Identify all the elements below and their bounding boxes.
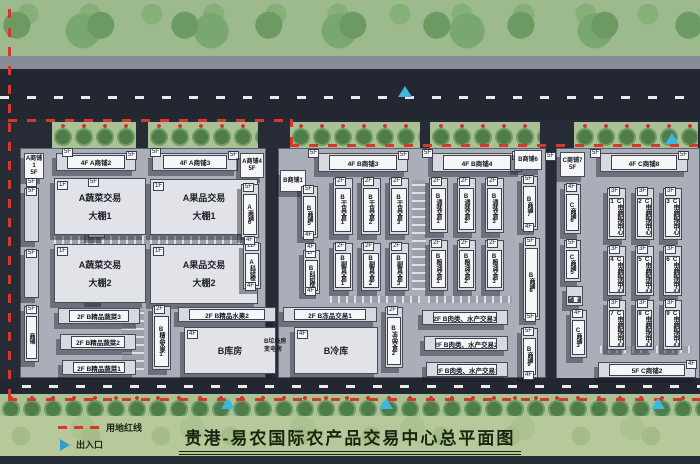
- floor-chip: 4F: [305, 287, 316, 296]
- building-label: A商铺15F: [25, 154, 43, 178]
- building: 3FC电商配送中心4: [607, 246, 626, 296]
- building-label: 商铺: [26, 316, 37, 359]
- floor-chip: 3F: [637, 245, 648, 254]
- building: 1FB科研楼4F: [303, 250, 320, 294]
- floor-chip: 2F: [459, 239, 470, 248]
- floor-chip: 5F: [398, 151, 409, 160]
- floor-chip: 2F: [387, 306, 398, 315]
- building: 2FB粮油交易1: [429, 240, 448, 291]
- building-label: B调味交易3: [487, 188, 502, 230]
- building: 2FB冻品交易2: [385, 307, 403, 368]
- floor-chip: 5F: [678, 151, 689, 160]
- building-label: 2F B冻品交易1: [294, 309, 366, 320]
- building-label: A商铺6: [243, 194, 257, 235]
- building: C商铺75F: [560, 152, 585, 177]
- building-label: B冻品交易2: [387, 317, 401, 365]
- building-label: B粮油交易3: [487, 250, 502, 288]
- building: 5F: [24, 250, 39, 298]
- building: 2FB干货交易3: [389, 178, 409, 235]
- building: 2FB粮油交易3: [485, 240, 504, 291]
- floor-chip: 5F: [26, 187, 37, 196]
- building-label: C电商配送中心8: [637, 310, 652, 347]
- building: C商铺4: [566, 286, 583, 306]
- building: 4FB库房: [184, 327, 276, 374]
- building-label: 4F C商铺8: [611, 155, 677, 170]
- building: 2FB副食交易3: [389, 243, 409, 291]
- building-label: 2F B肉类、水产交易2: [435, 338, 497, 349]
- building-label: B商铺9: [523, 338, 536, 375]
- entrance-marker: [665, 133, 679, 144]
- building: 3FC电商配送中心6: [663, 246, 682, 296]
- building: 2F B冻品交易1: [283, 307, 377, 322]
- building-label: 5F C商铺2: [609, 364, 685, 376]
- floor-chip: 4F: [572, 309, 583, 318]
- building: 2F B精品水果2: [178, 307, 276, 322]
- entrance-marker: [221, 398, 235, 409]
- floor-chip: 4F: [523, 371, 534, 380]
- floor-chip: 5F: [26, 305, 37, 314]
- building: 2FB调味交易3: [485, 178, 504, 233]
- floor-chip: 5F: [228, 151, 239, 160]
- floor-chip: 5F: [566, 239, 577, 248]
- bottom-road-lane-marking: [22, 385, 700, 388]
- floor-chip: 5F: [243, 183, 254, 192]
- building: 2F B精品蔬菜3: [58, 308, 140, 324]
- floor-chip: 5F: [523, 175, 534, 184]
- building-label: 2F B肉类、水产交易3: [433, 312, 497, 323]
- building-label: C商铺3: [572, 320, 585, 355]
- building-label: 4F B商铺3: [329, 155, 397, 170]
- building: 2FB精品水果1: [152, 306, 171, 370]
- building: 3FC电商配送中心5: [635, 246, 654, 296]
- parking-row: [54, 236, 258, 244]
- floor-chip: 1F: [57, 247, 68, 256]
- floor-chip: 1F: [153, 247, 164, 256]
- building-label: B干货交易2: [363, 188, 379, 232]
- building: 2FB干货交易1: [333, 178, 353, 235]
- floor-chip: 3F: [665, 299, 676, 308]
- building-label: B副食交易2: [363, 253, 379, 288]
- building: 3FC电商配送中心8: [635, 300, 654, 350]
- building-label: C电商配送中心7: [609, 310, 624, 347]
- floor-chip: 5F: [525, 313, 536, 322]
- floor-chip: 2F: [431, 177, 442, 186]
- building: 5FB商铺74F: [521, 176, 538, 230]
- top-road: [0, 69, 700, 119]
- building: 4F C商铺85F: [600, 153, 688, 172]
- floor-chip: 2F: [459, 177, 470, 186]
- building: 4FC商铺3: [570, 310, 587, 358]
- building: 4F B商铺45F: [432, 153, 522, 172]
- building: 2FB调味交易1: [429, 178, 448, 233]
- building: 3FC电商配送中心2: [635, 188, 654, 240]
- floor-chip: 2F: [487, 239, 498, 248]
- building: A商铺45F: [240, 153, 264, 178]
- floor-chip: 5F: [62, 148, 73, 157]
- building: 5F C商铺24F: [598, 362, 696, 378]
- building: 2FB副食交易1: [333, 243, 353, 291]
- building-label: B副食交易3: [391, 253, 407, 288]
- floor-chip: 4F: [566, 183, 577, 192]
- building: 4F A商铺35F: [152, 153, 238, 171]
- building: 2F B肉类、水产交易2: [424, 336, 508, 351]
- building-label: C电商配送中心5: [637, 256, 652, 293]
- floor-chip: 2F: [487, 177, 498, 186]
- building: 2FB调味交易2: [457, 178, 476, 233]
- floor-chip: 5F: [26, 178, 37, 187]
- parking-row: [428, 296, 512, 303]
- floor-chip: 4F: [244, 236, 255, 245]
- floor-chip: 3F: [637, 299, 648, 308]
- building-label: B调味交易1: [431, 188, 446, 230]
- building: 11FA科研楼4F: [243, 243, 261, 289]
- building-label: B调味交易2: [459, 188, 474, 230]
- parking-row: [330, 296, 420, 303]
- building-label: 2F B精品蔬菜3: [69, 310, 129, 322]
- building: 5FC商铺5: [564, 240, 581, 282]
- building: 5FA商铺6: [241, 184, 259, 238]
- building-label: 2F B精品水果2: [189, 309, 265, 320]
- floor-chip: 2F: [335, 242, 346, 251]
- building: 5F: [24, 188, 39, 242]
- building: 2FB副食交易2: [361, 243, 381, 291]
- floor-chip: 5F: [26, 249, 37, 258]
- building-label: 2F B精品蔬菜2: [71, 336, 125, 348]
- plan-title: 贵港-易农国际农产品交易中心总平面图: [0, 424, 700, 449]
- boundary-line-bottom: [8, 398, 700, 401]
- building-label: B商铺5: [303, 196, 316, 235]
- top-sidewalk: [0, 56, 700, 69]
- building-label: C商铺5: [566, 250, 579, 279]
- floor-chip: 2F: [363, 242, 374, 251]
- building: 2F B肉类、水产交易3: [422, 310, 508, 325]
- building: 5FB商铺85F: [523, 238, 540, 320]
- building-label: B库房: [185, 328, 275, 373]
- boundary-line-top-right: [290, 144, 700, 147]
- building-label: B精品水果1: [154, 316, 169, 367]
- building-label: B粮油交易1: [431, 250, 446, 288]
- building-label: C电商配送中心6: [665, 256, 680, 293]
- building: 4FC商铺6: [564, 184, 581, 234]
- parking-row: [412, 180, 426, 290]
- floor-chip: 3F: [609, 299, 620, 308]
- hedge-row: [148, 122, 258, 148]
- floor-chip: 2F: [154, 305, 165, 314]
- floor-chip: 2F: [431, 239, 442, 248]
- building-label: 2F B精品蔬菜1: [73, 362, 125, 373]
- building-label: B干货交易3: [391, 188, 407, 232]
- building: 2F B精品蔬菜1: [62, 360, 136, 375]
- building: 5F商铺: [24, 306, 39, 362]
- building-label: 4F A商铺2: [67, 155, 125, 169]
- building-label: B干货交易1: [335, 188, 351, 232]
- building-label: C商铺4: [568, 296, 581, 303]
- floor-chip: 3F: [665, 187, 676, 196]
- building-label: A蔬菜交易 大棚1: [55, 179, 145, 234]
- floor-chip: 2F: [391, 177, 402, 186]
- boundary-line-step: [290, 119, 293, 146]
- building-label: B商铺6: [515, 151, 541, 169]
- floor-chip: 3F: [665, 245, 676, 254]
- top-green-belt: [0, 0, 700, 56]
- building: 2F B精品蔬菜2: [60, 334, 136, 350]
- building-label: B商铺7: [523, 186, 536, 227]
- building: 4F B商铺35F: [318, 153, 408, 172]
- floor-chip: 3F: [609, 245, 620, 254]
- floor-chip: 4F: [305, 243, 316, 252]
- building-label: C电商配送中心2: [637, 198, 652, 237]
- building-label: A果品交易 大棚2: [151, 245, 257, 303]
- floor-chip: 2F: [335, 177, 346, 186]
- entrance-marker: [398, 86, 412, 97]
- floor-text: 5F: [569, 165, 576, 172]
- entrance-marker: [651, 398, 665, 409]
- floor-chip: 4F: [686, 360, 697, 369]
- floor-chip: 5F: [523, 327, 534, 336]
- floor-chip: 5F: [590, 149, 601, 158]
- floor-chip: 1F: [57, 181, 68, 190]
- floor-chip: 5F: [525, 237, 536, 246]
- building-label: B商铺8: [525, 248, 538, 317]
- hedge-row: [52, 122, 136, 148]
- site-plan: 用地红线 出入口 贵港-易农国际农产品交易中心总平面图 A商铺15F4F A商铺…: [0, 0, 700, 464]
- building: B商铺6: [514, 150, 542, 170]
- building: 3FC电商配送中心9: [663, 300, 682, 350]
- floor-chip: 3F: [609, 187, 620, 196]
- boundary-line-top-left: [8, 119, 292, 122]
- building-label: B粮油交易2: [459, 250, 474, 288]
- floor-chip: 5F: [422, 149, 433, 158]
- building: 4FB冷库: [294, 327, 378, 374]
- building: 1FA蔬菜交易 大棚1: [54, 178, 146, 235]
- building-label: 4F A商铺3: [163, 155, 227, 169]
- top-road-lane-marking: [0, 96, 700, 99]
- floor-text: 5F: [248, 166, 255, 173]
- building: 2FB粮油交易2: [457, 240, 476, 291]
- entrance-marker: [379, 398, 393, 409]
- boundary-line-left: [8, 0, 11, 398]
- building: 2FB干货交易2: [361, 178, 381, 235]
- floor-text: 5F: [30, 170, 37, 177]
- building-label: C商铺75F: [561, 153, 584, 176]
- building-label: A商铺45F: [241, 154, 263, 177]
- floor-chip: 4F: [297, 330, 308, 339]
- building-label: B副食交易1: [335, 253, 351, 288]
- floor-chip: 5F: [126, 151, 137, 160]
- building-label: 4F B商铺4: [443, 155, 511, 170]
- floor-chip: 2F: [363, 177, 374, 186]
- floor-chip: 4F: [303, 231, 314, 240]
- building-label: 2F B肉类、水产交易1: [437, 364, 497, 375]
- building-label: C电商配送中心1: [609, 198, 624, 237]
- building-label: C商铺6: [566, 194, 579, 231]
- floor-chip: 5F: [308, 149, 319, 158]
- building: 3FC电商配送中心1: [607, 188, 626, 240]
- floor-chip: 4F: [187, 330, 198, 339]
- floor-chip: 1F: [153, 182, 164, 191]
- building: A商铺15F: [24, 153, 44, 179]
- building: 3FC电商配送中心3: [663, 188, 682, 240]
- building: 3FC电商配送中心7: [607, 300, 626, 350]
- floor-chip: 4F: [245, 282, 256, 291]
- bottom-border-strip: [0, 456, 700, 464]
- floor-chip: 5F: [303, 185, 314, 194]
- floor-chip: 4F: [523, 223, 534, 232]
- building: 1FA果品交易 大棚2: [150, 244, 258, 304]
- floor-chip: 5F: [545, 152, 556, 161]
- utility-building-label: B垃圾房 变电房: [264, 338, 298, 354]
- building-label: C电商配送中心9: [665, 310, 680, 347]
- building-label: C电商配送中心4: [609, 256, 624, 293]
- building-label: A蔬菜交易 大棚2: [55, 245, 145, 302]
- floor-chip: 2F: [391, 242, 402, 251]
- building: 1FA蔬菜交易 大棚2: [54, 244, 146, 303]
- building-label: C电商配送中心3: [665, 198, 680, 237]
- floor-chip: 3F: [637, 187, 648, 196]
- floor-chip: 5F: [88, 178, 99, 187]
- floor-chip: 5F: [150, 148, 161, 157]
- building: 5FB商铺94F: [521, 328, 538, 378]
- building: 2F B肉类、水产交易1: [426, 362, 508, 377]
- building: 5FB商铺54F: [301, 186, 318, 238]
